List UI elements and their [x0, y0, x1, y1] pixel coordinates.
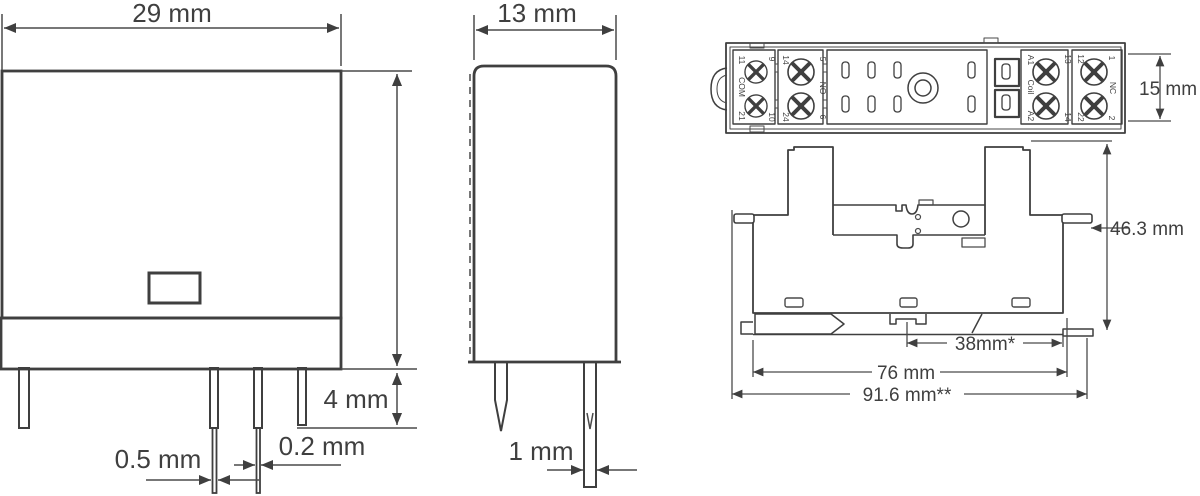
mounting-hole-inner: [915, 80, 931, 96]
terminal-label: 12: [1076, 54, 1086, 64]
relay-pin-tip: [257, 428, 261, 493]
small-hole: [916, 229, 921, 234]
relay-pin-standoff-label: 4 mm: [324, 384, 389, 414]
dim-pin-width: 0.2 mm: [234, 431, 365, 465]
socket-left-tower: [753, 147, 833, 235]
small-hole: [916, 215, 921, 220]
socket-width-label: 15 mm: [1139, 79, 1197, 100]
dim-socket-width: 15 mm: [1128, 54, 1197, 121]
terminal-label: A2: [1026, 111, 1036, 122]
terminal-label: 24: [781, 112, 791, 122]
socket-height-label: 46.3 mm: [1110, 219, 1184, 240]
terminal-label: 13: [1063, 54, 1073, 64]
relay-pin-thickness-label: 0.5 mm: [115, 444, 202, 474]
relay-pin-tip: [213, 428, 217, 493]
relay-side-pin-label: 1 mm: [509, 436, 574, 466]
dim-pin-thickness: 0.5 mm: [115, 444, 259, 480]
socket-right-tower: [985, 147, 1062, 235]
relay-pin: [19, 368, 29, 428]
relay-side-view: 13 mm 1 mm: [468, 0, 637, 487]
terminal-label: 9: [767, 57, 777, 62]
technical-drawing-canvas: 29 mm 4 mm 0.5 mm 0.2 mm: [0, 0, 1200, 496]
din-hole-spacing-label: 38mm*: [955, 334, 1016, 355]
relay-width-label: 29 mm: [132, 0, 211, 28]
socket-lower-body: [753, 223, 1063, 313]
socket-right-tab: [1062, 214, 1092, 223]
terminal-label: 2: [1107, 116, 1117, 121]
terminal-label: 14: [1063, 112, 1073, 122]
screw-hole: [953, 211, 969, 227]
terminal-label: 21: [737, 111, 747, 121]
relay-body-outline: [2, 71, 341, 318]
terminal-label: Coil: [1026, 80, 1036, 95]
relay-side-pin-notch: [587, 413, 593, 429]
relay-label-window: [149, 273, 200, 303]
terminal-label: A1: [1026, 55, 1036, 66]
dim-socket-height: 46.3 mm: [1031, 141, 1184, 330]
dim-relay-height: 4 mm: [297, 71, 417, 428]
relay-depth-label: 13 mm: [497, 0, 576, 28]
coil-window: [995, 90, 1019, 117]
relay-side-pin-blade: [584, 362, 596, 487]
terminal-label: 22: [1076, 112, 1086, 122]
socket-release-clip: [711, 68, 727, 110]
relay-pin: [298, 368, 306, 425]
socket-mid-top-profile: [833, 205, 985, 214]
relay-pin: [254, 368, 262, 428]
din-center-notch: [890, 314, 926, 324]
relay-front-view: 29 mm 4 mm 0.5 mm 0.2 mm: [1, 0, 417, 493]
terminal-label: 11: [737, 56, 747, 65]
mounting-spacing-label: 76 mm: [877, 363, 935, 384]
terminal-label: 1: [1107, 56, 1117, 61]
din-slide-clip: [755, 314, 844, 334]
socket-side-view: 46.3 mm 38mm* 76 mm 91.6 mm**: [732, 141, 1184, 406]
coil-window: [995, 59, 1019, 86]
relay-pin-width-label: 0.2 mm: [279, 431, 366, 461]
relay-base-flange: [1, 318, 341, 369]
dim-din-hole-spacing: 38mm*: [907, 322, 1063, 355]
relay-side-pin-pointed: [495, 362, 507, 431]
center-module: [827, 50, 987, 124]
terminal-label: 10: [767, 112, 777, 122]
terminal-label: 14: [781, 55, 791, 65]
overall-width-label: 91.6 mm**: [863, 385, 952, 406]
socket-left-tab: [734, 214, 754, 223]
screw-icon: [745, 95, 767, 117]
relay-pin: [210, 368, 218, 428]
dimension-drawing-svg: 29 mm 4 mm 0.5 mm 0.2 mm: [0, 0, 1200, 496]
dim-mounting-spacing: 76 mm: [753, 318, 1067, 384]
terminal-label: 6: [818, 115, 828, 120]
terminal-label: COM: [737, 77, 747, 97]
terminal-label: 5: [818, 57, 828, 62]
mounting-hole: [908, 73, 938, 103]
din-clip-hook: [741, 322, 753, 334]
relay-side-body-outline: [474, 66, 616, 362]
socket-top-view: 11 9 COM 21 10 14 5 NO 24 6 A1 13 Coil A…: [711, 38, 1197, 133]
dim-relay-width: 29 mm: [2, 0, 341, 70]
screw-icon: [745, 61, 767, 83]
terminal-label: NO: [818, 82, 828, 95]
dim-relay-depth: 13 mm: [474, 0, 616, 60]
terminal-label: NC: [1108, 82, 1118, 94]
dim-side-pin: 1 mm: [509, 436, 638, 470]
